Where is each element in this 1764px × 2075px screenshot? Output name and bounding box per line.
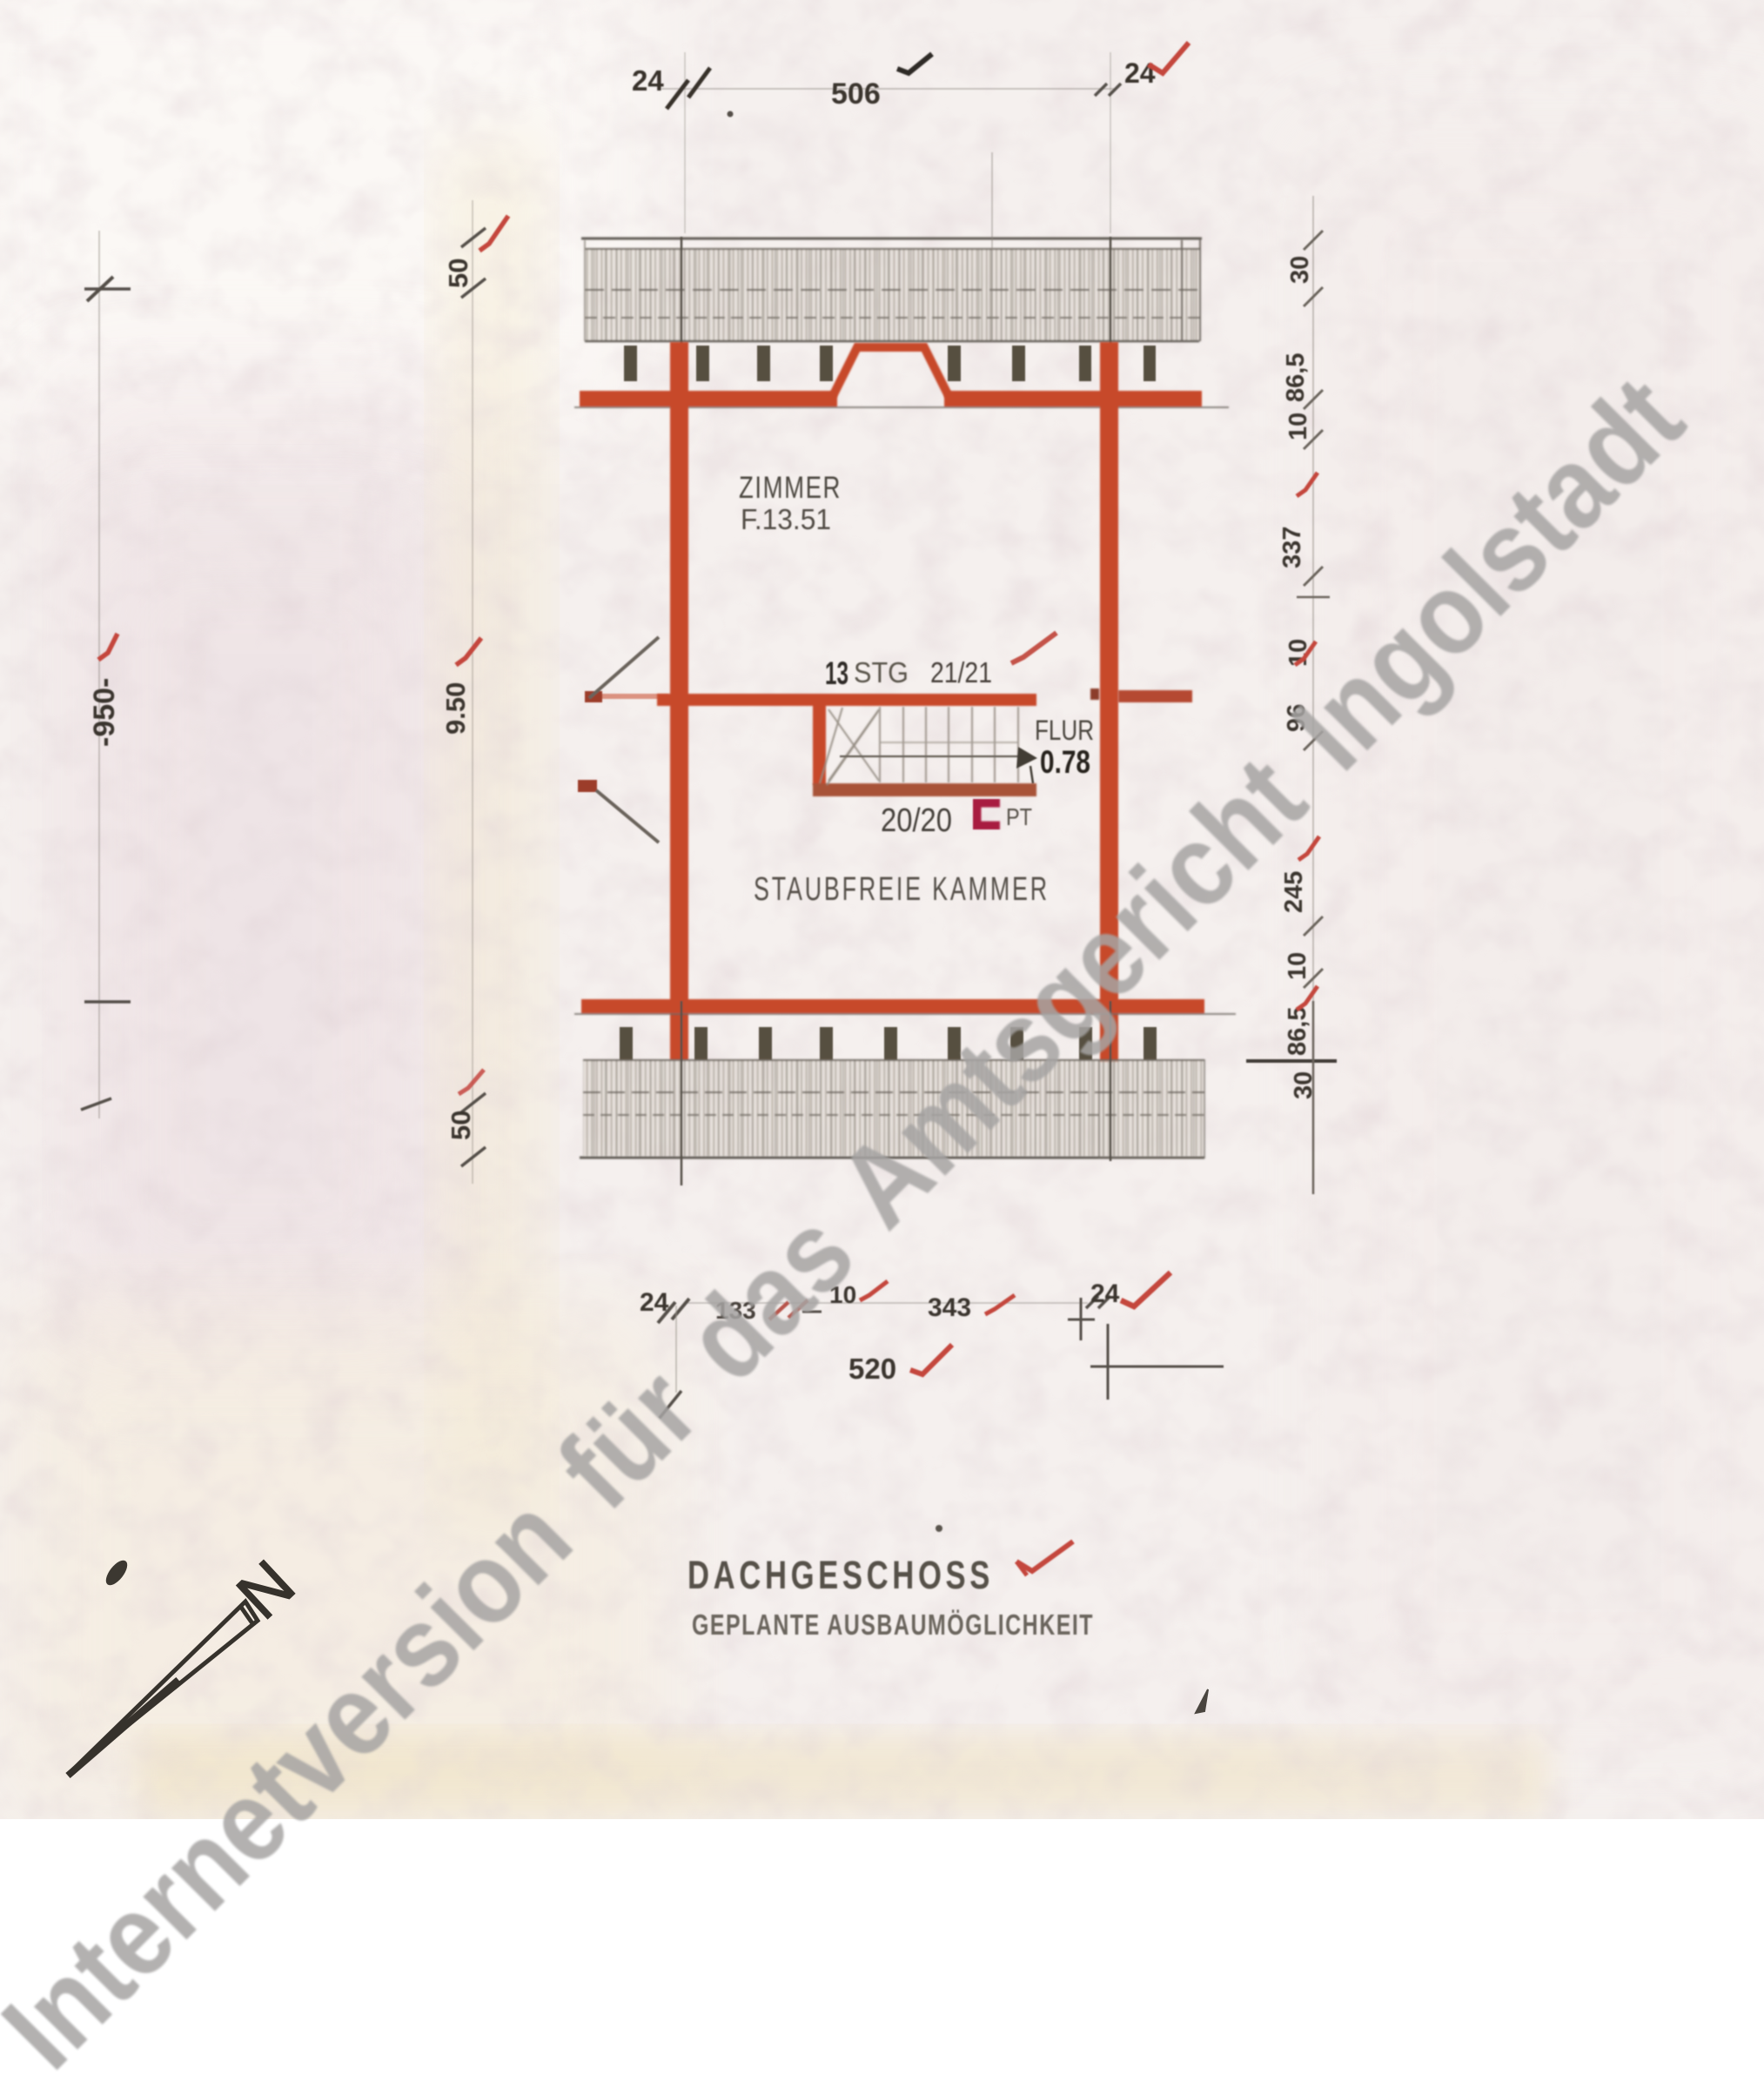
svg-text:PT: PT xyxy=(1006,803,1032,830)
svg-text:F.13.51: F.13.51 xyxy=(741,503,831,535)
svg-text:STG: STG xyxy=(854,656,909,688)
svg-text:506: 506 xyxy=(831,77,881,111)
svg-text:245: 245 xyxy=(1280,871,1308,913)
svg-text:520: 520 xyxy=(848,1353,896,1385)
svg-text:24: 24 xyxy=(1090,1279,1120,1308)
svg-text:ZIMMER: ZIMMER xyxy=(739,471,842,505)
svg-text:10: 10 xyxy=(1284,952,1311,980)
svg-text:FLUR: FLUR xyxy=(1035,715,1094,746)
svg-text:50: 50 xyxy=(446,1111,476,1140)
svg-text:DACHGESCHOSS: DACHGESCHOSS xyxy=(687,1553,994,1597)
svg-text:337: 337 xyxy=(1278,527,1306,568)
svg-text:9.50: 9.50 xyxy=(440,682,471,735)
svg-text:50: 50 xyxy=(443,259,473,288)
svg-text:10: 10 xyxy=(1284,413,1312,440)
svg-text:20/20: 20/20 xyxy=(881,802,952,839)
svg-text:86,5: 86,5 xyxy=(1284,1007,1311,1056)
svg-text:-950-: -950- xyxy=(88,678,121,747)
svg-text:343: 343 xyxy=(928,1293,971,1322)
svg-text:GEPLANTE AUSBAUMÖGLICHKEIT: GEPLANTE AUSBAUMÖGLICHKEIT xyxy=(692,1608,1094,1641)
svg-text:13: 13 xyxy=(825,655,848,691)
svg-text:0.78: 0.78 xyxy=(1040,744,1090,780)
svg-text:STAUBFREIE KAMMER: STAUBFREIE KAMMER xyxy=(754,871,1050,908)
svg-text:86,5: 86,5 xyxy=(1282,353,1310,402)
svg-text:24: 24 xyxy=(1124,57,1156,89)
svg-text:24: 24 xyxy=(632,64,664,97)
svg-text:30: 30 xyxy=(1286,256,1314,284)
svg-text:21/21: 21/21 xyxy=(930,656,992,688)
